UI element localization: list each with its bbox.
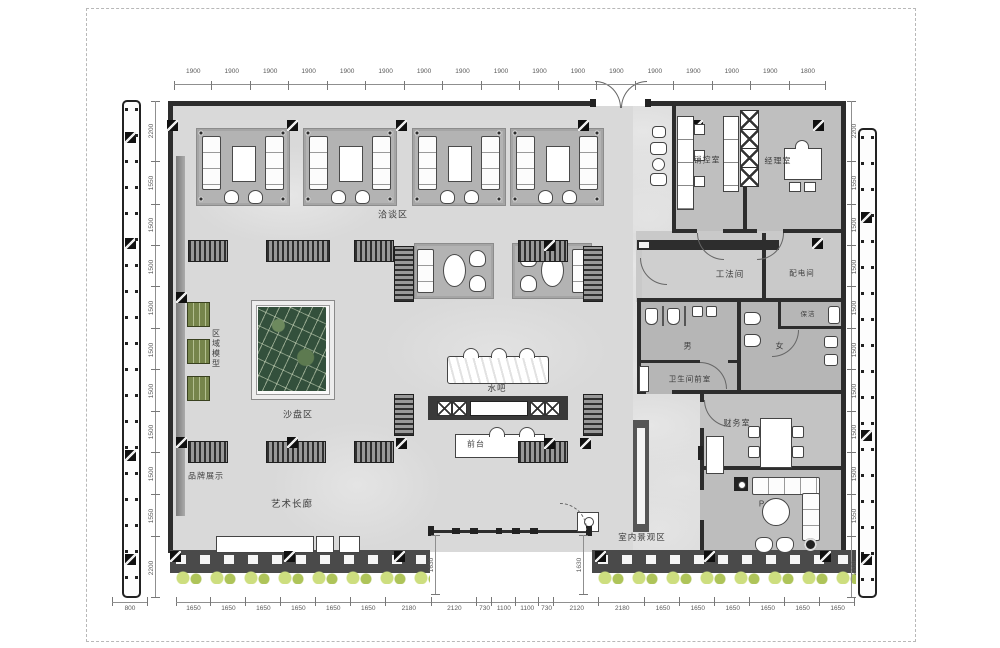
dim-label: 1100: [520, 605, 534, 613]
office-desk: [677, 116, 694, 210]
bar-chair: [491, 348, 507, 358]
dim-segment: 1650: [820, 597, 855, 615]
toilet: [744, 334, 761, 347]
column-icon: [170, 551, 181, 562]
office-chair: [792, 446, 804, 458]
column-icon: [396, 438, 407, 449]
dim-label: 1650: [726, 605, 740, 613]
dim-label: 2120: [447, 605, 461, 613]
label-cleaning-room: 保洁: [801, 308, 816, 318]
dim-segment: 1500: [847, 205, 863, 246]
oval-table: [443, 254, 466, 287]
dim-label: 1900: [686, 68, 700, 76]
armchair: [469, 250, 486, 267]
dim-segment: 2120: [432, 597, 477, 615]
sofa: [417, 249, 434, 293]
counter-cabinet: [545, 401, 560, 416]
window-row: [176, 555, 428, 564]
dim-segment: 1900: [328, 68, 366, 90]
dim-label: 1900: [532, 68, 546, 76]
display-stand: [518, 441, 568, 463]
finance-desk: [760, 418, 792, 468]
dim-label: 2200: [148, 124, 156, 138]
dim-entrance-left: 1630: [424, 535, 440, 595]
dim-label: 1900: [609, 68, 623, 76]
dim-segment: 1900: [443, 68, 481, 90]
dim-label: 730: [479, 605, 490, 613]
column-icon: [125, 238, 136, 249]
cabinet-cell: [740, 129, 759, 149]
rug-pin: [512, 130, 518, 136]
dim-label: 2200: [851, 124, 859, 138]
label-female-toilet: 女: [776, 341, 785, 352]
dim-label: 1650: [830, 605, 844, 613]
dim-segment: 1900: [713, 68, 751, 90]
door-hinge: [590, 99, 596, 107]
dim-label: 1900: [186, 68, 200, 76]
dim-segment: 1650: [680, 597, 715, 615]
dim-label: 1500: [148, 425, 156, 439]
column-icon: [287, 437, 298, 448]
dim-segment: 1900: [366, 68, 404, 90]
label-sand-table-area: 沙盘区: [283, 408, 313, 421]
coffee-table: [448, 146, 472, 182]
desk-chair: [519, 427, 535, 437]
toilet: [667, 308, 680, 325]
dim-label: 1900: [494, 68, 508, 76]
rug-pin: [198, 130, 204, 136]
label-region-model: 区域模型: [211, 329, 222, 369]
column-icon: [820, 551, 831, 562]
gallery-pilaster: [176, 156, 185, 516]
wall: [646, 101, 846, 106]
cleaning-sink: [828, 306, 840, 324]
column-icon: [580, 438, 591, 449]
rug-pin: [387, 196, 393, 202]
rug-pin: [496, 130, 502, 136]
coffee-table: [546, 146, 570, 182]
dim-segment: 2200: [144, 537, 160, 598]
column-icon: [704, 551, 715, 562]
floor-plan-canvas: 洽谈区 销控室 经理室 工法间 配电间 保洁 男 女 卫生间前室 财务室 室内景…: [0, 0, 1000, 648]
lounge-chair: [755, 537, 773, 553]
sofa: [309, 136, 328, 190]
rug-pin: [305, 130, 311, 136]
wall-fixture: [650, 173, 667, 186]
rug-pin: [280, 196, 286, 202]
armchair: [331, 190, 346, 204]
column-icon: [125, 132, 136, 143]
label-toilet-anteroom: 卫生间前室: [669, 374, 712, 385]
door-leaf: [452, 528, 460, 534]
wall: [783, 229, 846, 233]
dim-label: 1500: [148, 467, 156, 481]
dim-label: 1650: [221, 605, 235, 613]
office-desk: [723, 116, 739, 192]
armchair: [440, 190, 455, 204]
stall-partition: [684, 306, 686, 326]
wall-fixture: [650, 142, 667, 155]
dim-label: 1900: [648, 68, 662, 76]
dim-chain-left: 2200155015001500150015001500150015001550…: [144, 101, 160, 598]
wall: [778, 326, 842, 329]
label-indoor-landscape: 室内景观区: [618, 531, 666, 543]
dim-segment: 1500: [144, 287, 160, 328]
dim-segment: 1900: [520, 68, 558, 90]
dim-label: 1650: [691, 605, 705, 613]
sofa: [372, 136, 391, 190]
shrub-row: [176, 571, 430, 584]
desk-chair: [489, 427, 505, 437]
cabinet-cell: [740, 167, 759, 187]
dim-segment: 1100: [516, 597, 539, 615]
wall: [168, 101, 592, 106]
dim-label: 1900: [455, 68, 469, 76]
label-plant-marker: P: [759, 500, 765, 509]
dim-label: 1500: [148, 342, 156, 356]
dim-segment: 1900: [597, 68, 635, 90]
office-chair: [694, 176, 705, 187]
dim-segment: 2200: [847, 101, 863, 162]
label-finance-room: 财务室: [724, 418, 751, 429]
door-leaf: [496, 528, 502, 534]
wall: [672, 106, 676, 233]
dim-segment: 1500: [847, 246, 863, 287]
dim-label: 1900: [378, 68, 392, 76]
column-icon: [125, 450, 136, 461]
dim-label: 1500: [148, 259, 156, 273]
wall: [723, 229, 757, 233]
column-icon: [167, 120, 178, 131]
column-icon: [595, 551, 606, 562]
dim-segment: 1550: [144, 495, 160, 538]
dim-label: 2180: [615, 605, 629, 613]
dim-label: 1650: [256, 605, 270, 613]
dim-label: 1500: [851, 342, 859, 356]
region-model-box: [187, 339, 210, 364]
column-icon: [396, 120, 407, 131]
wall: [700, 470, 704, 490]
dim-segment: 2200: [847, 537, 863, 598]
label-power-room: 配电间: [789, 268, 815, 279]
dim-label: 1650: [291, 605, 305, 613]
dim-label: 1500: [148, 218, 156, 232]
dim-label: 1500: [148, 384, 156, 398]
dim-label: 1550: [851, 509, 859, 523]
display-stand: [188, 240, 228, 262]
dim-label: 1900: [763, 68, 777, 76]
dim-label: 1550: [148, 176, 156, 190]
dim-segment: 1900: [751, 68, 789, 90]
dim-label: 1900: [263, 68, 277, 76]
dim-label: 1500: [851, 384, 859, 398]
dim-segment: 1900: [174, 68, 212, 90]
dim-segment: 1100: [492, 597, 515, 615]
armchair: [538, 190, 553, 204]
dim-segment: 730: [539, 597, 554, 615]
wall: [737, 302, 741, 394]
dim-label: 1650: [795, 605, 809, 613]
guest-chair: [789, 182, 801, 192]
armchair: [469, 275, 486, 292]
rug-pin: [496, 196, 502, 202]
coffee-table: [232, 146, 256, 182]
dim-label: 1500: [851, 259, 859, 273]
dim-label: 2120: [570, 605, 584, 613]
label-male-toilet: 男: [684, 341, 693, 352]
column-icon: [812, 238, 823, 249]
dim-label: 1500: [851, 218, 859, 232]
rug-pin: [387, 130, 393, 136]
display-stand: [583, 394, 603, 436]
dim-segment: 1500: [144, 412, 160, 453]
dim-segment: 1650: [715, 597, 750, 615]
display-stand: [354, 441, 394, 463]
counter-cabinet: [530, 401, 545, 416]
sofa: [481, 136, 500, 190]
dim-label: 1900: [301, 68, 315, 76]
dim-segment: 1650: [211, 597, 246, 615]
dim-label: 1650: [361, 605, 375, 613]
dim-label: 1650: [760, 605, 774, 613]
basin: [824, 354, 838, 366]
dim-label: 1900: [417, 68, 431, 76]
column-icon: [544, 438, 555, 449]
dim-label: 1900: [571, 68, 585, 76]
wall: [637, 298, 846, 302]
dim-chain-bottom-left: 800: [112, 597, 148, 615]
office-chair: [795, 140, 809, 149]
label-manager-office: 经理室: [765, 156, 792, 167]
office-chair: [748, 446, 760, 458]
rug-pin: [594, 130, 600, 136]
dim-segment: 1500: [847, 412, 863, 453]
wall: [168, 101, 173, 553]
sand-table-map: [258, 307, 326, 391]
coffee-table: [339, 146, 363, 182]
lounge-sofa: [802, 493, 820, 541]
display-stand: [394, 246, 414, 302]
side-cabinet: [706, 436, 724, 474]
dim-segment: 1650: [785, 597, 820, 615]
wall: [778, 302, 781, 328]
dim-segment: 1650: [281, 597, 316, 615]
basin: [824, 336, 838, 348]
dim-label: 2200: [851, 560, 859, 574]
dim-segment: 1650: [645, 597, 680, 615]
dim-segment: 1650: [351, 597, 386, 615]
anteroom-counter: [639, 366, 649, 392]
dim-segment: 1500: [144, 329, 160, 370]
dim-chain-top: 1900190019001900190019001900190019001900…: [174, 68, 826, 90]
label-sales-control-room: 销控室: [694, 155, 721, 166]
dim-segment: 1650: [246, 597, 281, 615]
dim-segment: 1500: [847, 329, 863, 370]
dim-label: 1100: [497, 605, 511, 613]
dim-segment: 1650: [176, 597, 211, 615]
round-table: [762, 498, 790, 526]
display-stand: [518, 240, 568, 262]
counter-cabinet: [437, 401, 452, 416]
dim-entrance-right: 1630: [572, 535, 588, 595]
sofa: [265, 136, 284, 190]
dim-segment: 1900: [674, 68, 712, 90]
rug-pin: [414, 196, 420, 202]
wall: [743, 184, 747, 233]
display-table: [216, 536, 314, 553]
display-stand: [354, 240, 394, 262]
dim-label: 1630: [428, 558, 436, 572]
region-model-box: [187, 302, 210, 327]
toilet: [645, 308, 658, 325]
dim-chain-bottom: 1650165016501650165016502180212073011001…: [176, 597, 855, 615]
dim-segment: 730: [477, 597, 492, 615]
door-leaf: [512, 528, 520, 534]
dim-label: 1900: [725, 68, 739, 76]
wall: [672, 390, 846, 394]
column-icon: [125, 554, 136, 565]
wall: [672, 229, 697, 233]
rug-pin: [414, 130, 420, 136]
dim-segment: 1900: [405, 68, 443, 90]
dim-segment: 1500: [144, 205, 160, 246]
left-colonnade: [122, 100, 141, 598]
guest-chair: [804, 182, 816, 192]
speaker-plant: [804, 538, 817, 551]
dim-label: 1500: [851, 301, 859, 315]
sofa: [418, 136, 437, 190]
wall-niche: [639, 242, 649, 248]
dim-segment: 2200: [144, 101, 160, 162]
sofa: [516, 136, 535, 190]
dim-segment: 1500: [847, 453, 863, 494]
dim-segment: 1900: [251, 68, 289, 90]
column-icon: [176, 437, 187, 448]
dim-segment: 1650: [750, 597, 785, 615]
label-negotiation-area: 洽谈区: [378, 208, 408, 221]
dim-label: 1630: [576, 558, 584, 572]
tv-panel: [698, 446, 703, 460]
door-leaf: [470, 528, 478, 534]
toilet: [744, 312, 761, 325]
column-icon: [287, 120, 298, 131]
window-row: [598, 555, 854, 564]
stall-partition: [662, 306, 664, 326]
label-brand-display: 品牌展示: [188, 471, 224, 482]
dim-label: 730: [541, 605, 552, 613]
armchair: [248, 190, 263, 204]
dim-label: 1800: [800, 68, 814, 76]
dim-chain-right: 2200155015001500150015001500150015001550…: [847, 101, 863, 598]
dim-segment: 1500: [144, 453, 160, 494]
shrub-row: [598, 571, 856, 584]
column-icon: [176, 292, 187, 303]
dim-label: 1650: [326, 605, 340, 613]
column-icon: [578, 120, 589, 131]
dim-label: 1650: [656, 605, 670, 613]
armchair: [562, 190, 577, 204]
wall: [728, 360, 737, 363]
dim-segment: 1550: [847, 162, 863, 205]
dim-segment: 1630: [424, 535, 440, 595]
dim-segment: 1900: [559, 68, 597, 90]
dim-segment: 2180: [599, 597, 645, 615]
label-art-gallery: 艺术长廊: [271, 496, 313, 510]
door-leaf: [530, 528, 538, 534]
dim-segment: 1900: [289, 68, 327, 90]
dim-label: 2200: [148, 560, 156, 574]
dim-segment: 1550: [847, 495, 863, 538]
dim-label: 2180: [402, 605, 416, 613]
main-hall-floor: [633, 106, 672, 233]
display-plinth: [339, 536, 360, 553]
dim-segment: 1630: [572, 535, 588, 595]
dim-label: 800: [125, 605, 136, 613]
wall-fixture: [652, 158, 665, 171]
armchair: [355, 190, 370, 204]
dim-label: 1500: [851, 467, 859, 481]
wall: [700, 520, 704, 552]
dim-label: 1550: [148, 509, 156, 523]
rug-pin: [594, 196, 600, 202]
dim-label: 1900: [340, 68, 354, 76]
rug-pin: [305, 196, 311, 202]
display-stand: [266, 240, 330, 262]
water-bar-table: [447, 356, 549, 384]
counter-cabinet: [452, 401, 467, 416]
dim-segment: 1800: [790, 68, 826, 90]
region-model-box: [187, 376, 210, 401]
column-icon: [813, 120, 824, 131]
dim-segment: 1650: [316, 597, 351, 615]
rug-pin: [512, 196, 518, 202]
armchair: [224, 190, 239, 204]
dim-label: 1900: [224, 68, 238, 76]
cabinet-cell: [740, 110, 759, 130]
sofa: [202, 136, 221, 190]
display-stand: [583, 246, 603, 302]
urinal: [706, 306, 717, 317]
rug-pin: [198, 196, 204, 202]
dim-label: 1500: [851, 425, 859, 439]
armchair: [520, 275, 537, 292]
dim-segment: 1500: [847, 287, 863, 328]
dim-segment: 2180: [386, 597, 432, 615]
label-method-room: 工法间: [716, 268, 745, 280]
dim-segment: 2120: [554, 597, 599, 615]
bar-chair: [463, 348, 479, 358]
armchair: [464, 190, 479, 204]
display-plinth: [316, 536, 334, 553]
dim-segment: 1550: [144, 162, 160, 205]
dim-segment: 1500: [144, 370, 160, 411]
sofa: [579, 136, 598, 190]
lounge-chair: [776, 537, 794, 553]
dim-label: 1550: [851, 176, 859, 190]
planter-inner: [637, 428, 645, 524]
dim-segment: 1900: [482, 68, 520, 90]
wall: [641, 360, 700, 363]
door-hinge: [645, 99, 651, 107]
bar-chair: [519, 348, 535, 358]
counter-top: [470, 401, 528, 416]
column-icon: [544, 240, 555, 251]
dim-label: 1500: [148, 301, 156, 315]
media-console-dial: [738, 481, 746, 489]
cabinet-cell: [740, 148, 759, 168]
office-chair: [792, 426, 804, 438]
dim-segment: 1500: [144, 246, 160, 287]
